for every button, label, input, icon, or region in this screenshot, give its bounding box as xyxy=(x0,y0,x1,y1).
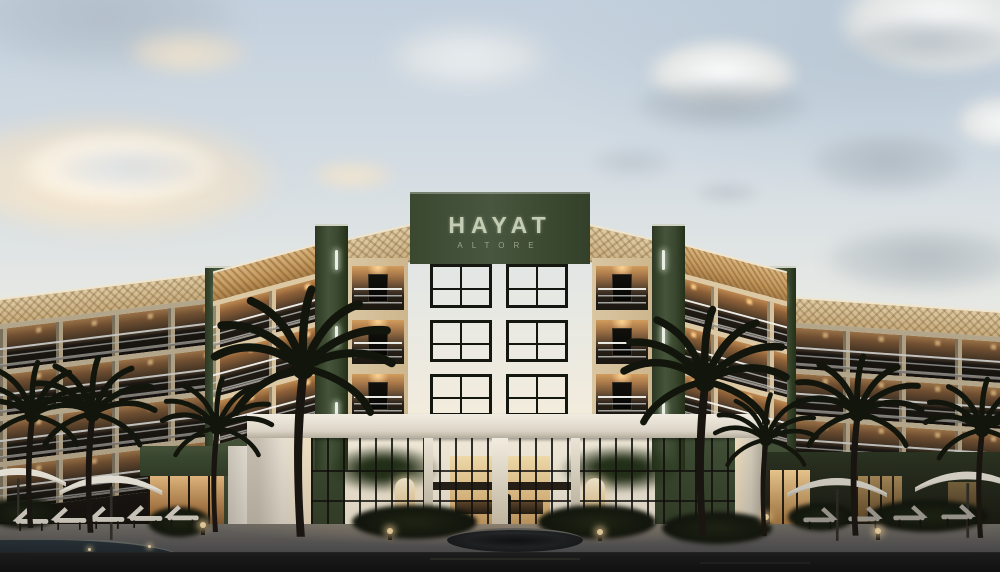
hotel-sign-subtitle: ALTORE xyxy=(410,241,590,250)
tower-window xyxy=(430,264,492,308)
road-reflection xyxy=(700,562,810,564)
palm-tree xyxy=(10,350,170,535)
hotel-sign-title: HAYAT xyxy=(410,212,590,239)
palm-tree xyxy=(905,372,1000,540)
pool-light-reflection xyxy=(88,548,91,551)
fountain-water xyxy=(465,534,565,547)
tower-window xyxy=(506,374,568,416)
pilaster-light xyxy=(662,250,665,270)
hotel-exterior-rendering: HAYAT ALTORE xyxy=(0,0,1000,572)
tower-window xyxy=(506,264,568,308)
tower-window xyxy=(430,374,492,416)
tower-window xyxy=(506,320,568,362)
tower-window xyxy=(430,320,492,362)
cloud xyxy=(695,182,760,204)
cloud xyxy=(315,160,395,188)
pool-light-reflection xyxy=(148,545,151,548)
pilaster-light xyxy=(335,250,338,270)
cloud xyxy=(810,135,965,193)
cloud xyxy=(850,20,1000,65)
cloud xyxy=(55,150,205,190)
foreground-road xyxy=(0,552,1000,572)
cloud xyxy=(130,30,250,72)
road-reflection xyxy=(430,558,580,560)
hotel-sign-block: HAYAT ALTORE xyxy=(410,192,590,264)
palm-tree xyxy=(200,278,400,540)
glass-pier-center xyxy=(492,438,508,532)
bollard-light-glow xyxy=(597,529,603,535)
cloud xyxy=(590,148,675,178)
cloud xyxy=(635,82,810,130)
cloud xyxy=(385,25,550,85)
